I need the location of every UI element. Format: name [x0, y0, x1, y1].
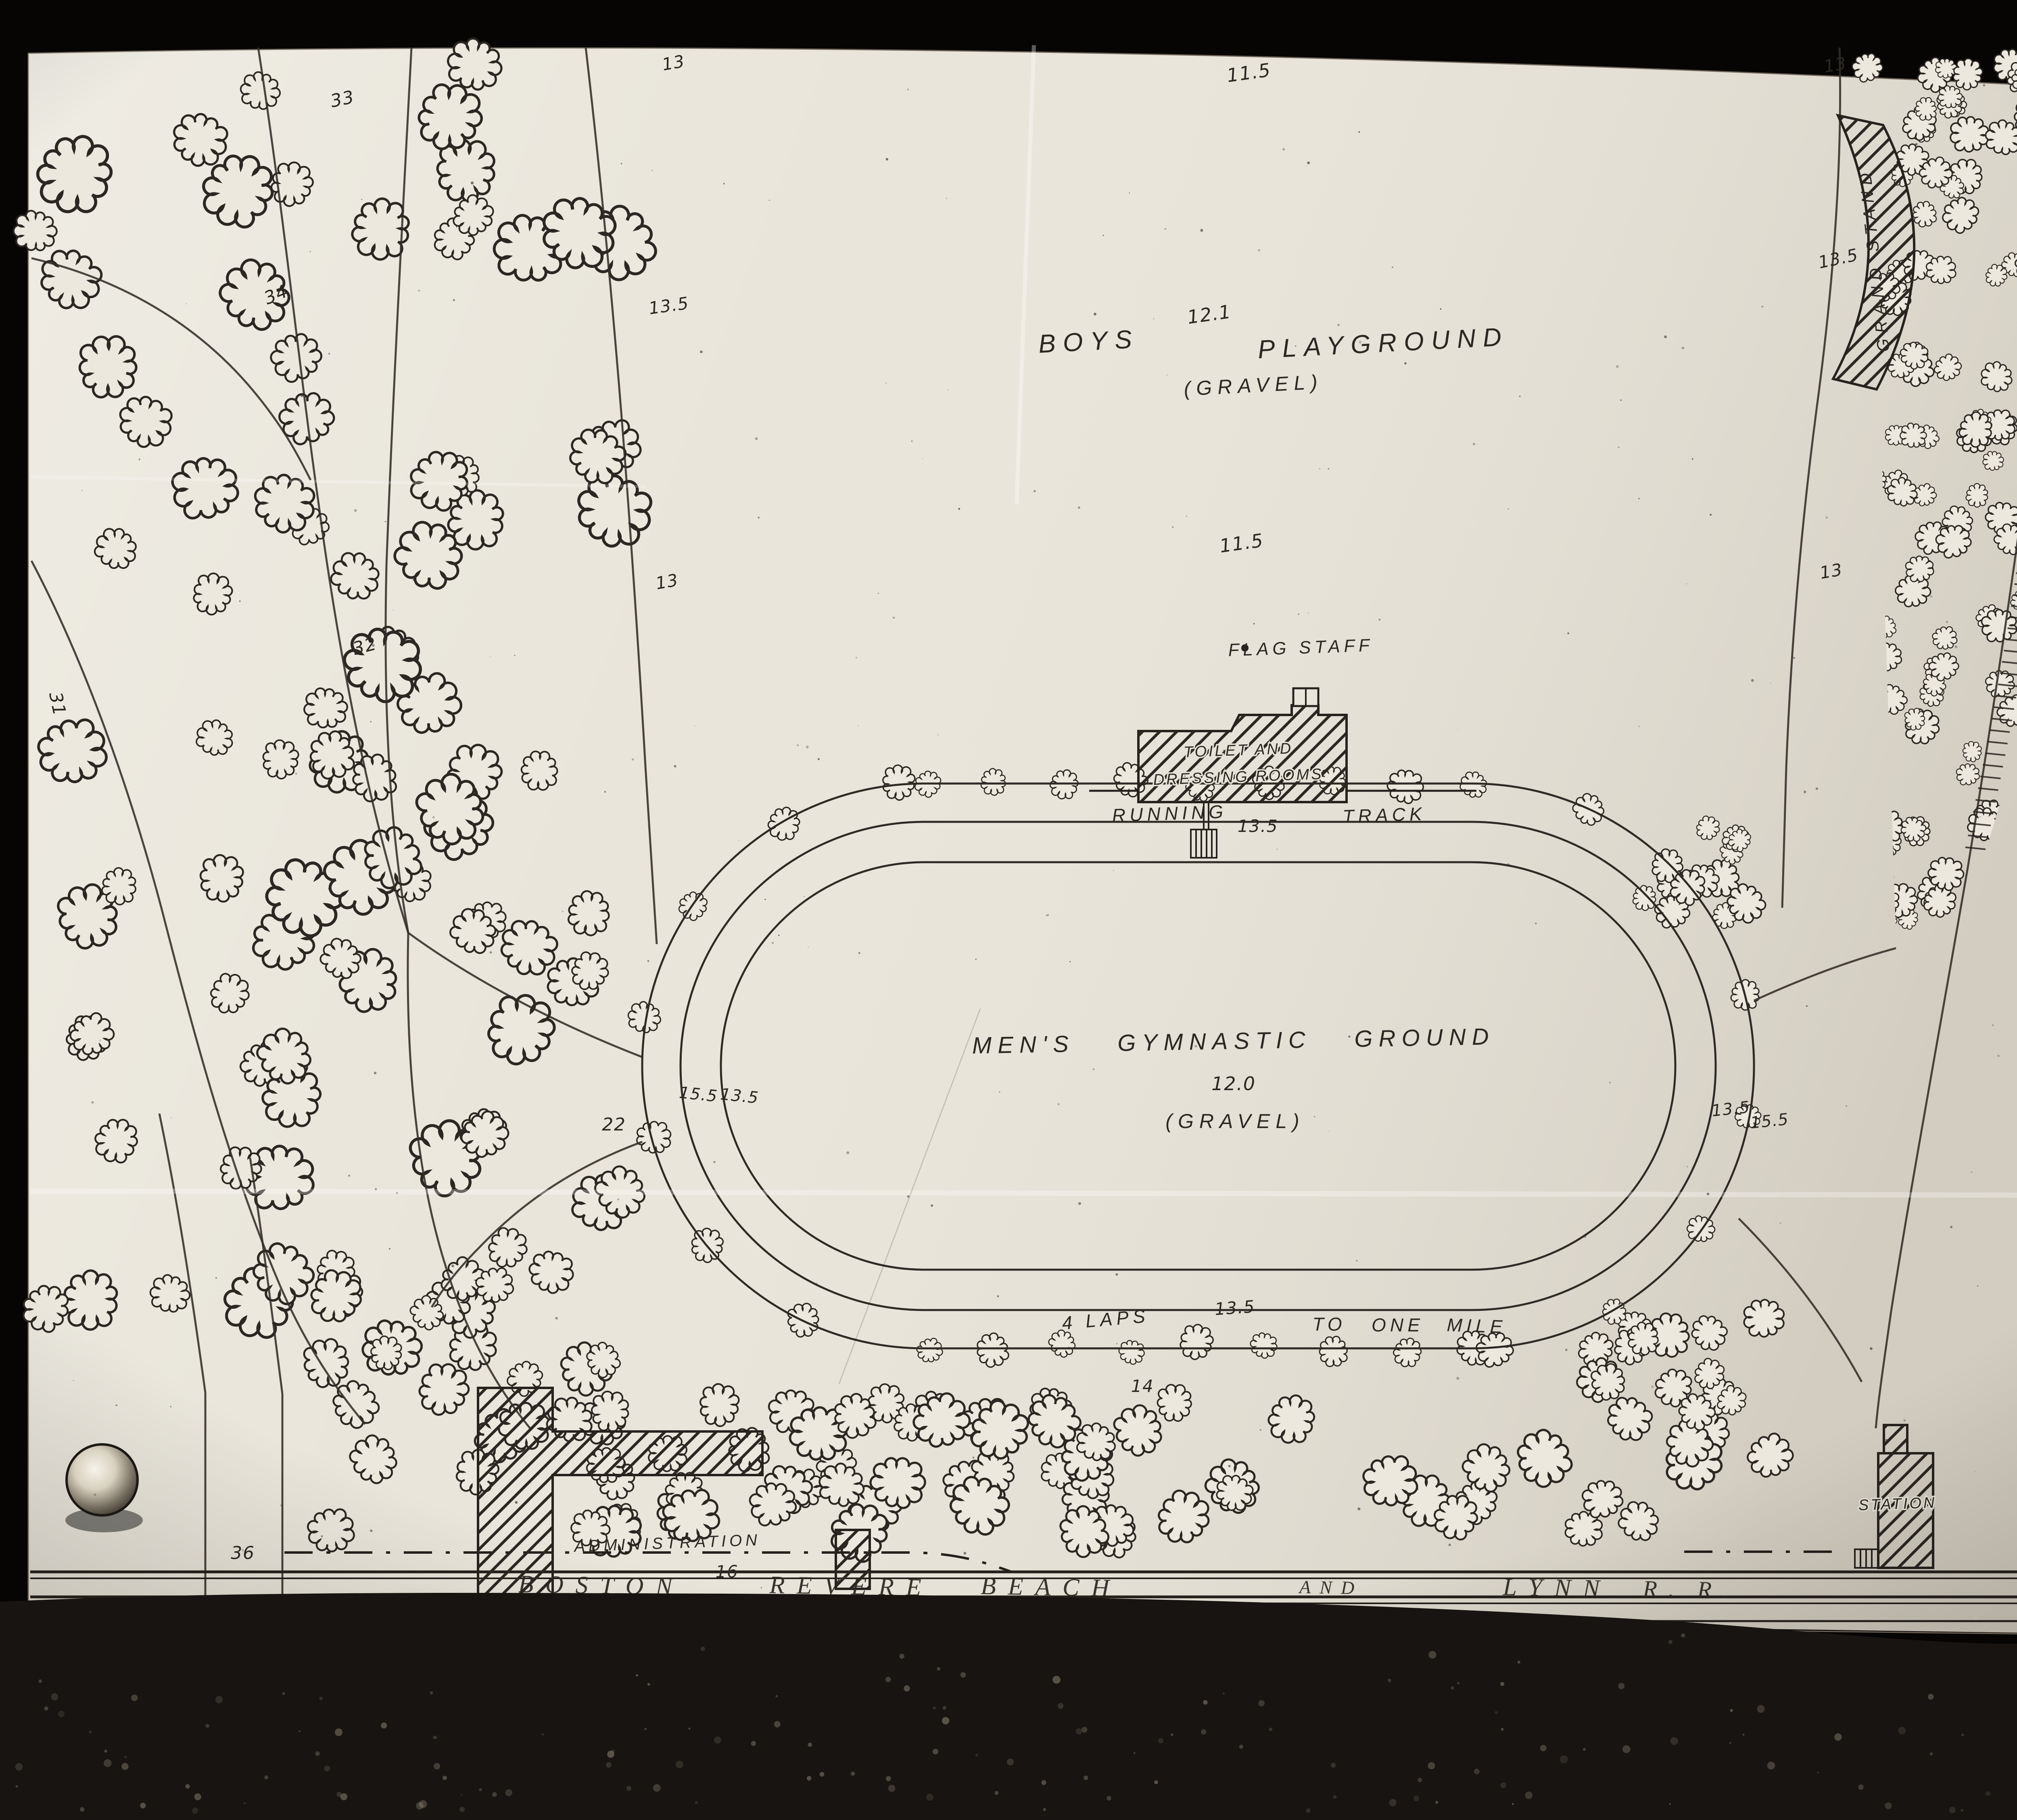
- band-speckle: [1961, 1734, 1964, 1736]
- band-speckle: [1474, 1769, 1480, 1774]
- photo-speckle: [1535, 923, 1537, 924]
- photo-speckle: [99, 1040, 100, 1041]
- photo-speckle: [1955, 646, 1958, 648]
- photo-speckle: [374, 1473, 375, 1474]
- band-speckle: [688, 1728, 691, 1730]
- band-speckle: [1451, 1686, 1454, 1690]
- photo-speckle: [370, 721, 372, 723]
- photo-speckle: [309, 251, 311, 252]
- photo-speckle: [604, 791, 606, 793]
- photo-speckle: [963, 1552, 966, 1555]
- band-speckle: [1058, 1703, 1063, 1709]
- band-speckle: [1518, 1661, 1520, 1663]
- band-speckle: [819, 1772, 824, 1777]
- photo-speckle: [1997, 1055, 2000, 1057]
- photo-speckle: [1314, 1116, 1315, 1117]
- photo-speckle: [1194, 1045, 1197, 1047]
- photo-speckle: [1508, 508, 1509, 510]
- band-speckle: [51, 1693, 58, 1701]
- band-speckle: [1525, 1791, 1533, 1799]
- photo-speckle: [1806, 1005, 1808, 1007]
- band-speckle: [104, 1759, 111, 1767]
- band-speckle: [1223, 1693, 1225, 1694]
- band-speckle: [80, 1807, 84, 1812]
- band-speckle: [15, 1763, 23, 1771]
- photo-speckle: [1804, 790, 1806, 793]
- photo-speckle: [1116, 1343, 1118, 1344]
- band-speckle: [1084, 1776, 1088, 1780]
- band-speckle: [1540, 1745, 1547, 1751]
- band-speckle: [653, 1784, 661, 1792]
- photo-speckle: [1069, 961, 1071, 963]
- photo-speckle: [758, 517, 760, 519]
- photo-speckle: [195, 1025, 196, 1026]
- photo-speckle: [328, 353, 330, 355]
- photo-speckle: [1950, 1226, 1952, 1228]
- band-speckle: [89, 1731, 92, 1734]
- photo-speckle: [555, 1317, 557, 1319]
- band-speckle: [1949, 1807, 1956, 1813]
- band-speckle: [1007, 1759, 1014, 1766]
- photo-speckle: [1200, 229, 1203, 232]
- photo-speckle: [375, 1188, 377, 1190]
- photo-speckle: [1979, 816, 1981, 817]
- band-speckle: [140, 1803, 146, 1808]
- photo-speckle: [816, 1283, 817, 1284]
- photo-speckle: [1710, 514, 1712, 516]
- photo-speckle: [393, 610, 394, 611]
- photo-speckle: [385, 521, 386, 522]
- band-speckle: [1961, 1809, 1963, 1812]
- photo-speckle: [1404, 362, 1407, 365]
- photo-speckle: [1078, 506, 1080, 509]
- photo-speckle: [348, 1174, 350, 1176]
- photo-speckle: [806, 746, 809, 748]
- photo-speckle: [1946, 621, 1948, 623]
- photo-speckle: [1687, 1166, 1688, 1167]
- photo-speckle: [1473, 443, 1475, 445]
- photo-speckle: [621, 163, 622, 165]
- photo-speckle: [1584, 1236, 1586, 1238]
- photo-speckle: [1971, 1172, 1972, 1173]
- photo-speckle: [1565, 1349, 1568, 1351]
- band-speckle: [751, 1741, 756, 1746]
- photo-speckle: [490, 951, 492, 954]
- band-speckle: [926, 1794, 933, 1801]
- photo-speckle: [1751, 679, 1754, 682]
- photo-speckle: [1319, 468, 1320, 469]
- photo-speckle: [617, 1199, 619, 1200]
- photo-speckle: [280, 1504, 282, 1507]
- photo-speckle: [858, 725, 858, 726]
- band-speckle: [1928, 1694, 1933, 1699]
- band-speckle: [58, 1711, 65, 1717]
- band-speckle: [1414, 1795, 1419, 1801]
- band-speckle: [1041, 1780, 1046, 1785]
- photo-speckle: [997, 1295, 999, 1297]
- band-speckle: [676, 1761, 683, 1768]
- photo-speckle: [1357, 1507, 1360, 1510]
- photo-speckle: [1164, 228, 1166, 230]
- band-speckle: [1583, 1748, 1586, 1751]
- photo-speckle: [633, 1516, 635, 1517]
- band-speckle: [611, 1749, 615, 1753]
- band-speckle: [1500, 1782, 1506, 1788]
- band-speckle: [1817, 1772, 1819, 1774]
- photo-artifacts-layer: [0, 45, 2017, 1820]
- photo-speckle: [1359, 341, 1362, 344]
- photo-speckle: [700, 351, 703, 353]
- band-speckle: [121, 1763, 128, 1770]
- band-speckle: [1834, 1733, 1842, 1741]
- band-speckle: [933, 1706, 936, 1709]
- band-speckle: [542, 1733, 544, 1736]
- band-speckle: [937, 1667, 940, 1671]
- band-speckle: [1171, 1734, 1173, 1736]
- photo-speckle: [81, 490, 82, 491]
- photo-speckle: [797, 744, 799, 746]
- photo-speckle: [94, 1494, 96, 1496]
- photo-speckle: [1308, 612, 1309, 613]
- photo-speckle: [1167, 375, 1167, 376]
- band-speckle: [1043, 1808, 1046, 1811]
- photo-speckle: [73, 1380, 74, 1381]
- photo-speckle: [1348, 1035, 1351, 1038]
- band-speckle: [942, 1717, 950, 1725]
- photo-speckle: [1253, 623, 1255, 625]
- photo-speckle: [723, 183, 725, 184]
- band-speckle: [324, 1766, 330, 1772]
- photo-speckle: [389, 1248, 390, 1250]
- photo-speckle: [242, 1549, 244, 1552]
- band-speckle: [1560, 1755, 1568, 1764]
- photo-speckle: [1977, 1285, 1978, 1287]
- band-speckle: [851, 1772, 855, 1776]
- photo-speckle: [1047, 914, 1049, 916]
- band-speckle: [443, 1776, 447, 1780]
- band-speckle: [416, 1802, 424, 1810]
- band-speckle: [381, 1722, 387, 1728]
- band-speckle: [1930, 1752, 1933, 1755]
- band-speckle: [933, 1749, 938, 1755]
- photo-speckle: [1449, 1544, 1451, 1546]
- photo-speckle: [374, 1072, 376, 1074]
- photo-speckle: [1870, 1347, 1873, 1350]
- band-speckle: [1052, 1676, 1061, 1684]
- band-speckle: [1389, 1799, 1397, 1806]
- band-speckle: [1729, 1742, 1731, 1744]
- band-speckle: [1333, 1795, 1336, 1799]
- photo-speckle: [674, 765, 676, 767]
- band-speckle: [943, 1706, 946, 1709]
- band-speckle: [1082, 1727, 1088, 1733]
- photo-speckle: [588, 530, 589, 531]
- band-speckle: [1501, 1728, 1503, 1730]
- band-speckle: [1306, 1808, 1310, 1813]
- band-speckle: [1134, 1752, 1136, 1754]
- photo-speckle: [1277, 849, 1278, 850]
- photo-speckle: [1378, 619, 1380, 621]
- band-speckle: [335, 1728, 342, 1736]
- photo-speckle: [804, 896, 804, 897]
- band-speckle: [205, 1724, 209, 1728]
- band-speckle: [1670, 1737, 1678, 1745]
- band-speckle: [433, 1736, 437, 1739]
- band-speckle: [39, 1680, 42, 1683]
- band-speckle: [194, 1793, 201, 1800]
- photo-speckle: [769, 200, 770, 201]
- band-speckle: [131, 1695, 138, 1701]
- photo-speckle: [1337, 324, 1340, 326]
- band-speckle: [1331, 1763, 1336, 1768]
- band-speckle: [1681, 1634, 1685, 1638]
- band-speckle: [626, 1786, 631, 1791]
- band-speckle: [899, 1654, 904, 1659]
- photo-speckle: [1259, 1429, 1261, 1431]
- photo-speckle: [739, 840, 739, 841]
- photo-speckle: [1682, 347, 1684, 349]
- band-speckle: [1107, 1796, 1111, 1801]
- photo-speckle: [1078, 1202, 1081, 1205]
- photo-speckle: [1118, 820, 1119, 822]
- photo-speckle: [1519, 395, 1521, 397]
- photo-speckle: [1992, 1024, 1994, 1026]
- band-speckle: [885, 1677, 891, 1682]
- band-speckle: [1668, 1640, 1672, 1644]
- photo-speckle: [1638, 726, 1639, 727]
- photo-speckle: [1638, 498, 1639, 499]
- band-speckle: [1885, 1802, 1892, 1809]
- photo-speckle: [1885, 1439, 1888, 1441]
- band-speckle: [1973, 1615, 1979, 1620]
- band-speckle: [1203, 1700, 1207, 1705]
- photo-speckle: [818, 758, 820, 760]
- band-speckle: [647, 1683, 650, 1686]
- photo-speckle: [2004, 722, 2006, 724]
- photo-speckle: [1507, 863, 1509, 865]
- band-speckle: [904, 1685, 910, 1691]
- photo-speckle: [413, 579, 414, 581]
- photo-speckle: [938, 734, 938, 735]
- photo-speckle: [772, 942, 774, 944]
- photo-speckle: [514, 655, 516, 656]
- photo-speckle: [1863, 130, 1865, 132]
- band-speckle: [1622, 1745, 1630, 1753]
- band-speckle: [1986, 1791, 1990, 1796]
- photo-speckle: [354, 509, 357, 512]
- photo-speckle: [765, 899, 766, 900]
- photo-speckle: [973, 1456, 974, 1458]
- band-speckle: [606, 1762, 612, 1768]
- photo-speckle: [295, 773, 297, 775]
- photo-speckle: [361, 199, 362, 200]
- photo-speckle: [370, 1530, 373, 1532]
- photo-speckle: [1307, 161, 1310, 164]
- band-speckle: [1757, 1705, 1764, 1713]
- photo-speckle: [553, 1418, 555, 1420]
- photo-speckle: [1223, 750, 1225, 752]
- push-pin: [67, 1444, 138, 1515]
- band-speckle: [1435, 1801, 1438, 1804]
- photo-speckle: [1392, 267, 1393, 268]
- photo-speckle: [1983, 84, 1986, 87]
- photo-speckle: [1974, 1471, 1975, 1472]
- photo-speckle: [372, 644, 375, 647]
- band-speckle: [1512, 1803, 1514, 1805]
- band-speckle: [1457, 1682, 1460, 1684]
- band-speckle: [1158, 1738, 1163, 1743]
- band-speckle: [807, 1776, 811, 1780]
- photo-speckle: [911, 441, 912, 442]
- band-speckle: [430, 1691, 433, 1695]
- photo-speckle: [975, 959, 976, 960]
- photo-speckle: [893, 616, 895, 619]
- spot-elevation-label: 13: [1822, 53, 1848, 77]
- photographed-plan: BOYS12.1PLAYGROUND(GRAVEL)11.5133313.534…: [0, 0, 2017, 1820]
- photo-speckle: [1651, 1386, 1654, 1388]
- plan-sheet-vignette: [28, 48, 2017, 1638]
- band-speckle: [774, 1721, 781, 1728]
- band-speckle: [636, 1674, 638, 1676]
- site-plan-map: BOYS12.1PLAYGROUND(GRAVEL)11.5133313.534…: [0, 0, 2017, 1820]
- photo-speckle: [292, 1296, 293, 1298]
- photo-speckle: [755, 437, 758, 440]
- photo-speckle: [1609, 1082, 1611, 1083]
- photo-speckle: [139, 459, 140, 460]
- band-speckle: [244, 1802, 246, 1804]
- photo-speckle: [171, 1117, 171, 1118]
- photo-speckle: [453, 299, 455, 301]
- band-speckle: [124, 1756, 127, 1758]
- photo-speckle: [1780, 1222, 1781, 1223]
- photo-speckle: [1567, 632, 1569, 634]
- photo-speckle: [922, 458, 923, 459]
- band-speckle: [44, 1706, 48, 1711]
- band-speckle: [1418, 1778, 1422, 1782]
- photo-speckle: [186, 303, 187, 304]
- photo-speckle: [647, 960, 649, 962]
- photo-speckle: [1915, 143, 1918, 146]
- band-speckle: [1500, 1682, 1504, 1686]
- photo-speckle: [1295, 345, 1296, 347]
- band-speckle: [975, 1753, 978, 1756]
- band-speckle: [15, 1785, 18, 1788]
- photo-speckle: [1618, 447, 1619, 448]
- band-speckle: [282, 1692, 285, 1695]
- photo-speckle: [1328, 468, 1329, 470]
- photo-speckle: [1930, 595, 1933, 598]
- band-speckle: [888, 1785, 896, 1792]
- photo-speckle: [347, 93, 348, 94]
- photo-speckle: [1793, 657, 1795, 659]
- photo-speckle: [1440, 308, 1442, 310]
- band-speckle: [336, 1792, 342, 1797]
- photo-speckle: [632, 758, 634, 761]
- band-speckle: [434, 1763, 440, 1770]
- photo-speckle: [432, 816, 435, 819]
- photo-speckle: [1094, 313, 1096, 316]
- photo-speckle: [1846, 1105, 1847, 1107]
- photo-speckle: [846, 1151, 849, 1154]
- photo-speckle: [1457, 729, 1458, 730]
- photo-speckle: [934, 512, 935, 512]
- band-speckle: [1201, 1729, 1206, 1734]
- photo-speckle: [418, 290, 420, 291]
- photo-speckle: [1058, 1103, 1060, 1105]
- photo-speckle: [931, 1204, 933, 1207]
- photo-speckle: [1115, 1273, 1118, 1276]
- band-speckle: [299, 1730, 301, 1732]
- photo-speckle: [91, 1101, 94, 1103]
- band-speckle: [104, 1750, 107, 1753]
- band-speckle: [1154, 1780, 1158, 1784]
- photo-speckle: [115, 1404, 117, 1406]
- photo-speckle: [515, 1501, 518, 1504]
- photo-speckle: [202, 1570, 203, 1571]
- photo-speckle: [1258, 249, 1260, 251]
- photo-speckle: [1093, 1068, 1094, 1070]
- photo-speckle: [1186, 516, 1187, 517]
- band-speckle: [459, 1807, 465, 1812]
- band-speckle: [1742, 1734, 1744, 1736]
- photo-speckle: [1172, 526, 1173, 528]
- photo-speckle: [808, 947, 809, 948]
- photo-speckle: [396, 1192, 398, 1194]
- photo-speckle: [948, 389, 949, 390]
- photo-speckle: [1228, 1465, 1231, 1467]
- band-speckle: [1428, 1651, 1436, 1659]
- band-speckle: [215, 1696, 223, 1703]
- photo-speckle: [1620, 399, 1622, 401]
- band-speckle: [960, 1672, 966, 1678]
- band-speckle: [1767, 1761, 1775, 1769]
- photo-speckle: [471, 182, 474, 184]
- photo-speckle: [288, 874, 290, 875]
- photo-speckle: [451, 1264, 454, 1267]
- band-speckle: [1388, 1678, 1391, 1682]
- photo-speckle: [1816, 788, 1818, 790]
- band-speckle: [1428, 1762, 1435, 1770]
- band-speckle: [461, 1794, 462, 1796]
- photo-speckle: [885, 383, 887, 384]
- band-speckle: [644, 1728, 647, 1730]
- photo-speckle: [760, 1587, 762, 1589]
- band-speckle: [1258, 1700, 1265, 1707]
- band-speckle: [1618, 1683, 1624, 1689]
- photo-speckle: [562, 911, 563, 912]
- photo-speckle: [999, 1091, 1000, 1093]
- photo-speckle: [1113, 870, 1114, 871]
- photo-speckle: [1761, 305, 1763, 307]
- band-speckle: [701, 1647, 705, 1651]
- band-speckle: [505, 1789, 512, 1796]
- band-speckle: [1898, 1727, 1906, 1734]
- photo-speckle: [907, 88, 909, 90]
- photo-speckle: [778, 934, 780, 936]
- band-speckle: [186, 1784, 190, 1789]
- photo-speckle: [652, 170, 653, 171]
- photo-speckle: [878, 593, 879, 594]
- band-speckle: [192, 1807, 198, 1814]
- photo-speckle: [2013, 269, 2014, 270]
- photo-speckle: [695, 726, 695, 727]
- band-speckle: [886, 1776, 891, 1781]
- photo-speckle: [1129, 192, 1130, 194]
- band-speckle: [479, 1788, 482, 1791]
- photo-speckle: [1298, 614, 1299, 615]
- photo-speckle: [215, 1277, 217, 1279]
- band-speckle: [1858, 1784, 1864, 1790]
